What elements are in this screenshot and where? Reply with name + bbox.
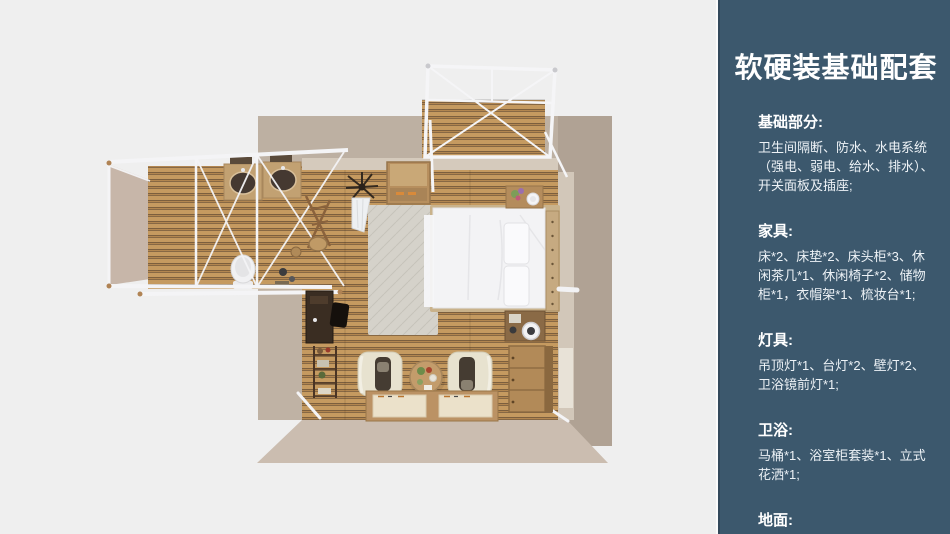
- desk-chair: [329, 302, 349, 328]
- tatami-platform: [366, 391, 498, 421]
- section-basics: 基础部分: 卫生间隔断、防水、水电系统（强电、弱电、给水、排水）、开关面板及插座…: [758, 111, 936, 195]
- slide: 软硬装基础配套 基础部分: 卫生间隔断、防水、水电系统（强电、弱电、给水、排水）…: [0, 0, 950, 534]
- floorplan-render: [0, 0, 716, 534]
- spec-panel: 软硬装基础配套 基础部分: 卫生间隔断、防水、水电系统（强电、弱电、给水、排水）…: [716, 0, 950, 534]
- pillow-bottom: [504, 266, 529, 306]
- section-body: 吊顶灯*1、台灯*2、壁灯*2、卫浴镜前灯*1;: [758, 356, 936, 394]
- sink-left: [230, 172, 256, 194]
- bed-fringe: [424, 215, 434, 307]
- section-label: 基础部分:: [758, 111, 936, 132]
- section-body: 床*2、床垫*2、床头柜*3、休闲茶几*1、休闲椅子*2、储物柜*1，衣帽架*1…: [758, 247, 936, 304]
- nightstand-top: [506, 186, 543, 208]
- balcony-deck: [422, 100, 545, 158]
- section-label: 灯具:: [758, 329, 936, 350]
- nightstand-bottom: [505, 311, 545, 341]
- section-label: 家具:: [758, 220, 936, 241]
- mat-left: [373, 395, 426, 417]
- section-body: 马桶*1、浴室柜套装*1、立式花洒*1;: [758, 446, 936, 484]
- headboard: [546, 211, 559, 311]
- spec-sections: 基础部分: 卫生间隔断、防水、水电系统（强电、弱电、给水、排水）、开关面板及插座…: [718, 111, 950, 534]
- dresser: [509, 346, 553, 412]
- section-bathroom: 卫浴: 马桶*1、浴室柜套装*1、立式花洒*1;: [758, 419, 936, 484]
- wall-door-panel: [559, 348, 573, 408]
- section-label: 卫浴:: [758, 419, 936, 440]
- lounge-chair-right: [448, 352, 492, 396]
- mat-right: [439, 395, 492, 417]
- section-lighting: 灯具: 吊顶灯*1、台灯*2、壁灯*2、卫浴镜前灯*1;: [758, 329, 936, 394]
- section-furniture: 家具: 床*2、床垫*2、床头柜*3、休闲茶几*1、休闲椅子*2、储物柜*1，衣…: [758, 220, 936, 304]
- storage-cabinet: [387, 162, 430, 204]
- section-label: 地面:: [758, 509, 936, 530]
- panel-title: 软硬装基础配套: [728, 46, 944, 86]
- section-flooring: 地面: 强化木地板、卫生间防滑防潮石塑板;: [758, 509, 936, 534]
- bed: [424, 205, 577, 312]
- wall-lamp: [559, 289, 577, 290]
- bathroom-end-wall: [110, 165, 150, 285]
- pillow-top: [504, 223, 529, 264]
- section-body: 卫生间隔断、防水、水电系统（强电、弱电、给水、排水）、开关面板及插座;: [758, 138, 936, 195]
- lounge-chair-left: [358, 352, 402, 396]
- floorplan-svg: [0, 0, 716, 534]
- toilet: [231, 255, 255, 289]
